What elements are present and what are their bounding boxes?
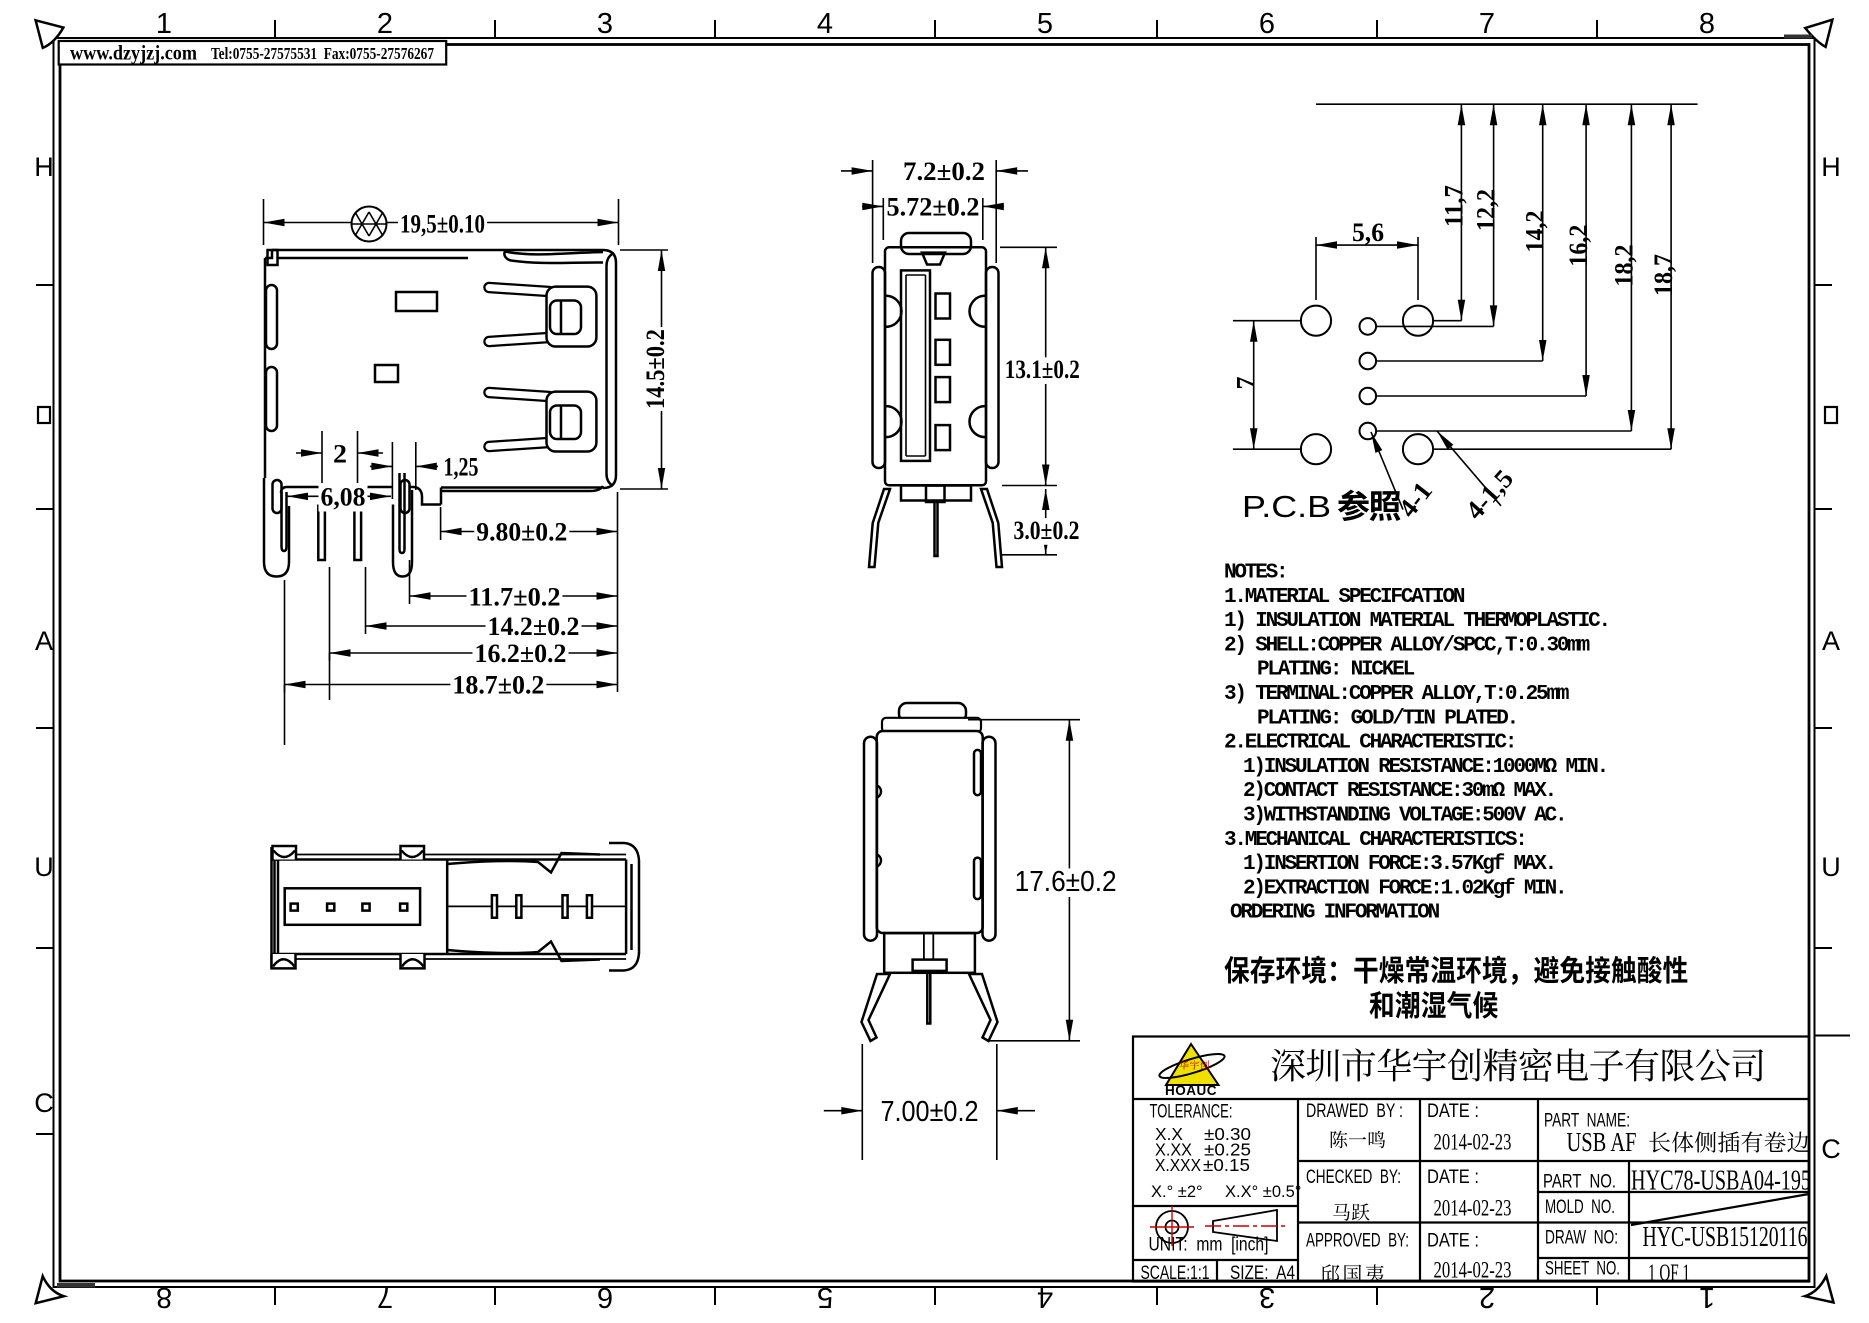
svg-text:2: 2	[1479, 1281, 1495, 1313]
svg-text:3: 3	[597, 8, 613, 40]
svg-text:USB AF: USB AF	[1567, 1127, 1637, 1157]
svg-text:1) INSULATION MATERIAL THERMOP: 1) INSULATION MATERIAL THERMOPLASTIC.	[1224, 610, 1609, 633]
svg-text:2: 2	[377, 8, 393, 40]
svg-text:17.6±0.2: 17.6±0.2	[1015, 866, 1117, 898]
svg-text:HOAUC: HOAUC	[1165, 1083, 1217, 1098]
svg-text:DATE :: DATE :	[1427, 1100, 1479, 1122]
svg-text:14.5±0.2: 14.5±0.2	[640, 329, 670, 409]
svg-text:11.7±0.2: 11.7±0.2	[469, 582, 561, 612]
svg-text:19,5±0.10: 19,5±0.10	[400, 209, 485, 239]
svg-text:PART NO.: PART NO.	[1543, 1171, 1616, 1193]
svg-text:C: C	[1821, 1134, 1841, 1164]
svg-text:1,25: 1,25	[444, 452, 479, 482]
svg-text:CHECKED BY:: CHECKED BY:	[1306, 1166, 1401, 1188]
svg-text:HYC78-USBA04-195: HYC78-USBA04-195	[1631, 1166, 1811, 1197]
svg-text:SIZE: A4: SIZE: A4	[1230, 1262, 1295, 1284]
svg-text:PLATING: NICKEL: PLATING: NICKEL	[1257, 659, 1415, 682]
svg-text:8: 8	[1699, 8, 1715, 40]
svg-text:H: H	[34, 152, 54, 182]
svg-text:5: 5	[1037, 8, 1053, 40]
svg-text:14.2±0.2: 14.2±0.2	[488, 611, 580, 641]
svg-text:3: 3	[1259, 1281, 1275, 1313]
svg-text:ORDERING INFORMATION: ORDERING INFORMATION	[1230, 902, 1440, 925]
svg-text:8: 8	[156, 1281, 172, 1313]
svg-text:DATE :: DATE :	[1427, 1230, 1479, 1252]
svg-text:DRAWED BY :: DRAWED BY :	[1306, 1100, 1403, 1122]
svg-text:1: 1	[156, 8, 172, 40]
svg-text:6: 6	[1259, 8, 1275, 40]
svg-text:7: 7	[1479, 8, 1495, 40]
svg-text:X.XXX: X.XXX	[1155, 1155, 1201, 1175]
svg-text:1.MATERIAL SPECIFCATION: 1.MATERIAL SPECIFCATION	[1224, 586, 1465, 609]
svg-text:SHEET NO.: SHEET NO.	[1545, 1258, 1620, 1280]
svg-text:A: A	[35, 626, 53, 656]
svg-text:SCALE:1:1: SCALE:1:1	[1141, 1262, 1210, 1284]
svg-text:Tel:0755-27575531 Fax:0755-27: Tel:0755-27575531 Fax:0755-27576267	[211, 44, 434, 63]
svg-text:12,2: 12,2	[1471, 189, 1501, 231]
svg-text:C: C	[34, 1088, 54, 1118]
svg-text:3) TERMINAL:COPPER ALLOY,T:0.2: 3) TERMINAL:COPPER ALLOY,T:0.25mm	[1224, 683, 1569, 706]
svg-text:7.2±0.2: 7.2±0.2	[903, 156, 985, 186]
svg-text:NOTES:: NOTES:	[1224, 562, 1286, 585]
svg-text:7: 7	[377, 1281, 393, 1313]
svg-text:TOLERANCE:: TOLERANCE:	[1150, 1101, 1233, 1123]
svg-text:9.80±0.2: 9.80±0.2	[476, 517, 567, 547]
svg-text:3)WITHSTANDING VOLTAGE:500V AC: 3)WITHSTANDING VOLTAGE:500V AC.	[1243, 805, 1565, 828]
svg-text:5.72±0.2: 5.72±0.2	[887, 192, 980, 222]
svg-text:14,2: 14,2	[1520, 211, 1550, 253]
svg-text:2014-02-23: 2014-02-23	[1434, 1258, 1512, 1283]
svg-text:18.7±0.2: 18.7±0.2	[452, 670, 544, 700]
svg-text:16,2: 16,2	[1563, 225, 1593, 267]
svg-text:5,6: 5,6	[1352, 217, 1384, 247]
svg-text:PLATING: GOLD/TIN PLATED.: PLATING: GOLD/TIN PLATED.	[1257, 707, 1517, 730]
svg-text:2014-02-23: 2014-02-23	[1434, 1130, 1512, 1155]
svg-text:X.° ±2°: X.° ±2°	[1151, 1183, 1203, 1201]
svg-text:18,7: 18,7	[1648, 254, 1678, 296]
svg-text:±0.15: ±0.15	[1203, 1155, 1250, 1175]
svg-text:5: 5	[817, 1281, 833, 1313]
svg-text:11,7: 11,7	[1438, 185, 1468, 227]
svg-text:7: 7	[1231, 377, 1261, 390]
svg-text:DATE :: DATE :	[1427, 1166, 1479, 1188]
svg-text:16.2±0.2: 16.2±0.2	[475, 638, 567, 668]
svg-text:2) SHELL:COPPER ALLOY/SPCC,T:0: 2) SHELL:COPPER ALLOY/SPCC,T:0.30mm	[1224, 634, 1590, 657]
svg-text:1)INSULATION RESISTANCE:1000MΩ: 1)INSULATION RESISTANCE:1000MΩ MIN.	[1243, 756, 1607, 779]
svg-text:2014-02-23: 2014-02-23	[1434, 1196, 1512, 1221]
svg-text:7.00±0.2: 7.00±0.2	[881, 1096, 979, 1128]
svg-text:3.0±0.2: 3.0±0.2	[1014, 515, 1080, 545]
svg-text:MOLD NO.: MOLD NO.	[1545, 1196, 1615, 1218]
svg-text:www.dzyjzj.com: www.dzyjzj.com	[70, 41, 197, 65]
svg-text:U: U	[34, 852, 54, 882]
svg-text:2: 2	[333, 439, 347, 469]
svg-text:2)CONTACT RESISTANCE:30mΩ MAX.: 2)CONTACT RESISTANCE:30mΩ MAX.	[1243, 780, 1555, 803]
svg-text:1)INSERTION FORCE:3.57Kgf MAX.: 1)INSERTION FORCE:3.57Kgf MAX.	[1243, 853, 1555, 876]
svg-text:4: 4	[817, 8, 833, 40]
svg-text:6: 6	[597, 1281, 613, 1313]
svg-text:3.MECHANICAL CHARACTERISTICS:: 3.MECHANICAL CHARACTERISTICS:	[1224, 829, 1526, 852]
svg-text:H: H	[1821, 152, 1841, 182]
svg-text:18,2: 18,2	[1608, 244, 1638, 286]
svg-text:P.C.B: P.C.B	[1242, 489, 1331, 524]
svg-text:6,08: 6,08	[321, 482, 366, 512]
svg-text:HYC-USB15120116: HYC-USB15120116	[1643, 1222, 1808, 1253]
svg-text:2)EXTRACTION FORCE:1.02Kgf MIN: 2)EXTRACTION FORCE:1.02Kgf MIN.	[1243, 877, 1565, 900]
svg-text:2.ELECTRICAL CHARACTERISTIC:: 2.ELECTRICAL CHARACTERISTIC:	[1224, 732, 1515, 755]
svg-text:1: 1	[1699, 1281, 1715, 1313]
svg-text:13.1±0.2: 13.1±0.2	[1005, 354, 1080, 384]
svg-text:4: 4	[1037, 1281, 1053, 1313]
svg-text:U: U	[1821, 852, 1841, 882]
svg-text:1 OF 1: 1 OF 1	[1648, 1261, 1690, 1287]
svg-text:X.X° ±0.5°: X.X° ±0.5°	[1225, 1183, 1301, 1201]
svg-text:APPROVED BY:: APPROVED BY:	[1306, 1230, 1409, 1252]
svg-text:DRAW NO:: DRAW NO:	[1545, 1227, 1618, 1249]
svg-text:A: A	[1822, 626, 1840, 656]
